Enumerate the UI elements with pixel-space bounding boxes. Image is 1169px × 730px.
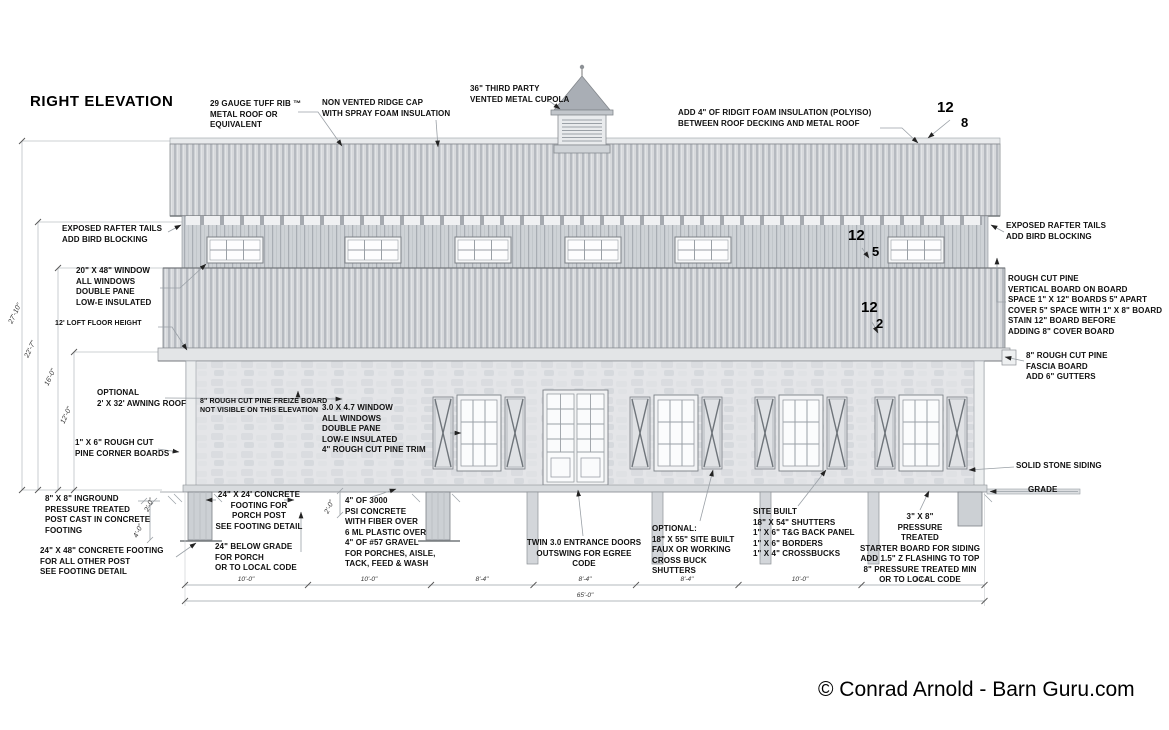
window-unit <box>755 395 847 471</box>
note-stone-siding: SOLID STONE SIDING <box>1016 461 1102 472</box>
dim-bay-2: 10'-0" <box>361 576 378 583</box>
elevation-drawing <box>0 0 1169 730</box>
note-lower-window: 3.0 X 4.7 WINDOW ALL WINDOWS DOUBLE PANE… <box>322 403 426 456</box>
page-title: RIGHT ELEVATION <box>30 93 173 110</box>
note-upper-window: 20" X 48" WINDOW ALL WINDOWS DOUBLE PANE… <box>76 266 151 308</box>
note-rafter-tails-left: EXPOSED RAFTER TAILS ADD BIRD BLOCKING <box>62 224 162 245</box>
note-cupola: 36" THIRD PARTY VENTED METAL CUPOLA <box>470 84 569 105</box>
elevation-sheet: RIGHT ELEVATION 29 GAUGE TUFF RIB ™ META… <box>0 0 1169 730</box>
note-foam-insulation: ADD 4" OF RIDGIT FOAM INSULATION (POLYIS… <box>678 108 871 129</box>
corner-board-right <box>974 361 984 487</box>
window-unit <box>433 395 525 471</box>
left-dimension-ticks <box>19 138 77 493</box>
note-shutters-site-built: SITE BUILT 18" X 54" SHUTTERS 1" X 6" T&… <box>753 507 855 560</box>
note-tuff-rib: 29 GAUGE TUFF RIB ™ METAL ROOF OR EQUIVA… <box>210 99 301 131</box>
note-grade: GRADE <box>1028 485 1057 496</box>
pitch-marker-8-12: 12 8 <box>937 100 954 116</box>
dim-bay-7: 10'-0" <box>915 576 932 583</box>
note-freize-board: 8" ROUGH CUT PINE FREIZE BOARD NOT VISIB… <box>200 397 327 416</box>
rafter-tails <box>186 216 982 225</box>
dim-overall-length: 65'-0" <box>577 592 594 599</box>
note-entrance-doors: TWIN 3.0 ENTRANCE DOORS OUTSWING FOR EGR… <box>524 538 644 570</box>
note-starter-board: 3" X 8" PRESSURE TREATED STARTER BOARD F… <box>856 512 984 586</box>
fascia-board <box>158 348 1010 361</box>
note-corner-boards: 1" X 6" ROUGH CUT PINE CORNER BOARDS <box>75 438 169 459</box>
cupola <box>551 65 613 153</box>
window-unit <box>875 395 967 471</box>
corner-board-left <box>186 361 196 487</box>
clerestory-wall <box>182 216 988 268</box>
note-board-on-board: ROUGH CUT PINE VERTICAL BOARD ON BOARD S… <box>1008 274 1162 337</box>
note-shutters-optional: OPTIONAL: 18" X 55" SITE BUILT FAUX OR W… <box>652 524 734 577</box>
note-rafter-tails-right: EXPOSED RAFTER TAILS ADD BIRD BLOCKING <box>1006 221 1106 242</box>
pitch-marker-2-12: 12 2 <box>861 300 878 316</box>
note-footing-porch: 24" X 24' CONCRETE FOOTING FOR PORCH POS… <box>208 490 310 532</box>
note-fascia: 8" ROUGH CUT PINE FASCIA BOARD ADD 6" GU… <box>1026 351 1108 383</box>
dim-bay-1: 10'-0" <box>238 576 255 583</box>
note-awning: OPTIONAL 2' X 32' AWNING ROOF <box>97 388 186 409</box>
note-below-grade: 24" BELOW GRADE FOR PORCH OR TO LOCAL CO… <box>215 542 297 574</box>
dim-bay-4: 8'-4" <box>579 576 592 583</box>
dim-bay-6: 10'-0" <box>792 576 809 583</box>
note-loft-height: 12' LOFT FLOOR HEIGHT <box>55 319 142 328</box>
note-ridge-cap: NON VENTED RIDGE CAP WITH SPRAY FOAM INS… <box>322 98 450 119</box>
copyright-text: © Conrad Arnold - Barn Guru.com <box>818 678 1135 702</box>
dim-bay-3: 8'-4" <box>476 576 489 583</box>
pitch-marker-5-12: 12 5 <box>848 228 865 244</box>
dim-bay-5: 8'-4" <box>681 576 694 583</box>
note-concrete-slab: 4" OF 3000 PSI CONCRETE WITH FIBER OVER … <box>345 496 436 570</box>
lower-wall <box>183 361 987 492</box>
window-unit <box>630 395 722 471</box>
lower-roof <box>158 268 1016 365</box>
note-footing-other: 24" X 48" CONCRETE FOOTING FOR ALL OTHER… <box>40 546 164 578</box>
entrance-doors <box>543 390 608 485</box>
